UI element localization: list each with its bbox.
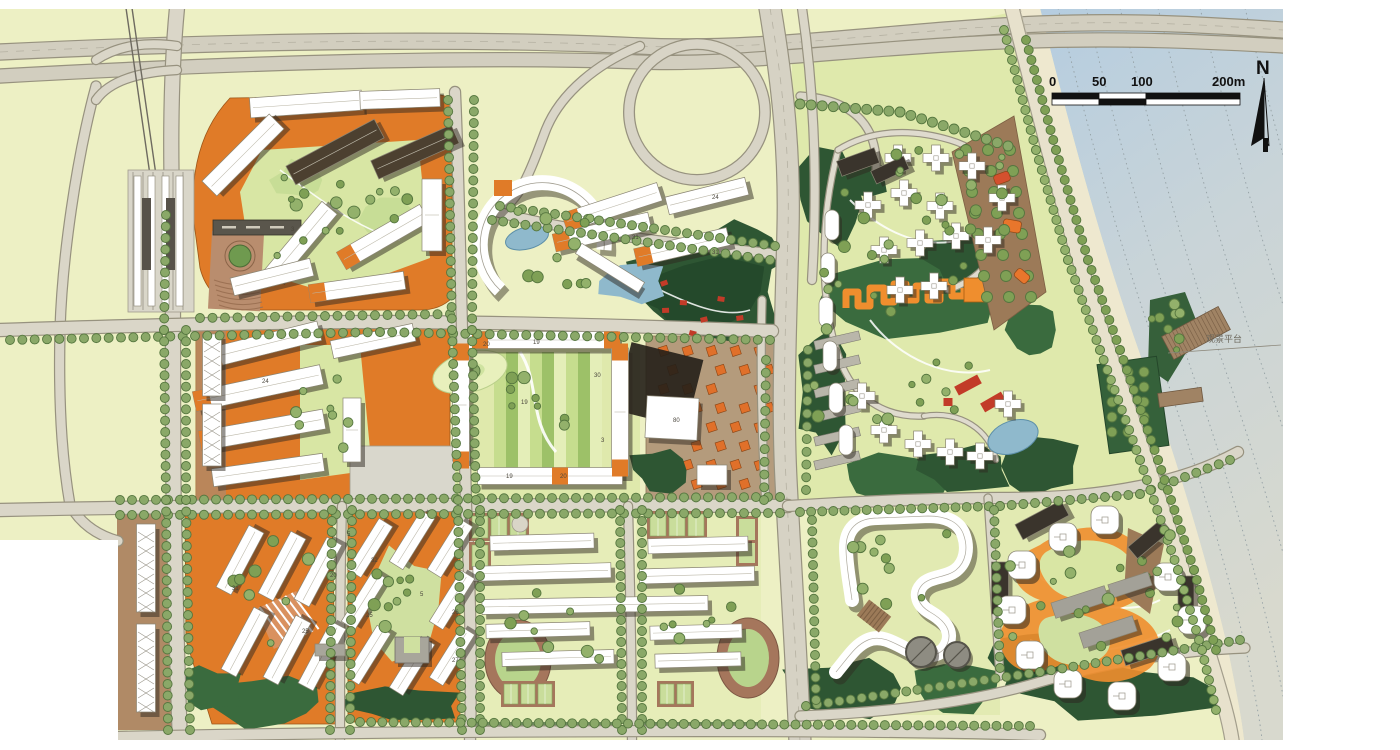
building-number: 27 [452, 658, 459, 664]
scale-tick-100: 100 [1131, 74, 1153, 89]
building-number: 20 [483, 342, 490, 348]
building-number: 80 [673, 418, 680, 424]
building-number: 31 [232, 586, 239, 592]
viewing-platform-label: 观景平台 [1206, 333, 1242, 344]
building-number: 31 [632, 235, 639, 241]
map-artwork [0, 8, 1400, 742]
building-number: 20 [560, 474, 567, 480]
building-number: 19 [506, 474, 513, 480]
building-number: 26 [452, 610, 459, 616]
building-number: 31 [712, 250, 719, 256]
masterplan-canvas: 0 50 100 200m N 观景平台 3131242420193019319… [0, 0, 1400, 750]
building-number: 19 [521, 400, 528, 406]
building-number: 32 [371, 558, 378, 564]
masterplan-page: 0 50 100 200m N 观景平台 3131242420193019319… [0, 0, 1400, 750]
scale-tick-200m: 200m [1212, 74, 1245, 89]
scale-bar-segments [1052, 93, 1240, 105]
building-number: 24 [712, 195, 719, 201]
scale-tick-0: 0 [1049, 74, 1056, 89]
building-number: 24 [262, 379, 269, 385]
building-number: 25 [366, 613, 373, 619]
building-number: 25 [302, 629, 309, 635]
north-label: N [1256, 58, 1270, 79]
building-number: 20 [330, 573, 337, 579]
scale-tick-50: 50 [1092, 74, 1106, 89]
building-number: 30 [594, 373, 601, 379]
building-number: 19 [533, 340, 540, 346]
